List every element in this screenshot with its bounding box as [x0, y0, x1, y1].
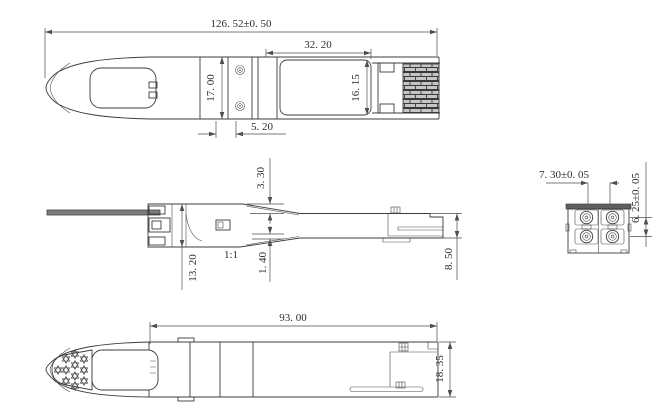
end-view: 7. 30±0. 05 6. 25±0. 05 — [539, 162, 652, 253]
end-top-strip — [566, 204, 631, 209]
scale-note: 1:1 — [224, 249, 238, 261]
dim-recess-height-group: 16. 15 — [350, 60, 369, 115]
dim-port-h-pitch-group: 7. 30±0. 05 — [539, 169, 619, 204]
fiber-port-icon — [580, 230, 592, 242]
port-housing — [601, 229, 624, 244]
bottom-section-lines — [190, 342, 253, 397]
bottom-view: 93. 00 18. 35 — [46, 312, 456, 401]
dim-rear-height: 8. 50 — [443, 248, 455, 271]
dim-bottom-step: 1. 40 — [257, 252, 269, 275]
dim-top-step: 3. 30 — [255, 167, 267, 190]
dim-rear-height-group: 8. 50 — [430, 214, 462, 281]
housing-notch — [582, 225, 591, 229]
latch-slider — [90, 68, 156, 108]
side-body-outline — [148, 204, 443, 247]
bail-nose-inner-line — [50, 63, 70, 113]
dim-lower-body-length: 93. 00 — [279, 312, 307, 324]
screw-icon — [236, 66, 245, 75]
bottom-slot — [350, 387, 423, 392]
body-section-lines — [258, 57, 277, 119]
edge-notch — [178, 338, 194, 342]
dim-body-height-group: 17. 00 — [205, 57, 224, 119]
dim-rear-recess-length-group: 32. 20 — [266, 39, 371, 59]
dim-rear-recess-length: 32. 20 — [304, 39, 332, 51]
bracket-tab — [380, 104, 394, 113]
edge-connector-contacts — [403, 64, 439, 113]
bottom-slider — [92, 350, 158, 390]
technical-drawing-page: 126. 52±0. 50 32. 20 17. 00 16. 15 5. 20 — [0, 0, 671, 414]
dim-top-step-group: 3. 30 — [247, 158, 284, 224]
dim-front-height: 13. 20 — [187, 254, 199, 282]
latch-detail — [149, 237, 165, 245]
fiber-port-icon — [606, 211, 618, 223]
dim-lower-body-length-group: 93. 00 — [150, 312, 437, 344]
dim-port-v-pitch-group: 6. 25±0. 05 — [630, 162, 652, 247]
transceiver-drawing: 126. 52±0. 50 32. 20 17. 00 16. 15 5. 20 — [0, 0, 671, 414]
edge-notch — [178, 397, 194, 401]
dim-overall-length: 126. 52±0. 50 — [210, 18, 272, 30]
dim-lower-body-width: 18. 35 — [434, 355, 446, 383]
bracket-tab — [380, 63, 394, 72]
fiber-port-icon — [580, 211, 592, 223]
bottom-body-outline — [150, 342, 438, 397]
side-notch — [566, 224, 569, 231]
port-housing — [575, 229, 598, 244]
top-view: 126. 52±0. 50 32. 20 17. 00 16. 15 5. 20 — [45, 18, 440, 138]
dim-port-v-pitch: 6. 25±0. 05 — [630, 172, 642, 223]
side-view: 3. 30 1. 40 13. 20 8. 50 1:1 — [47, 158, 462, 290]
port-housing — [575, 210, 598, 225]
dim-body-height: 17. 00 — [205, 74, 217, 102]
pcb-component-icon — [391, 207, 400, 213]
dim-recess-height: 16. 15 — [350, 74, 362, 102]
top-body-outline — [150, 57, 439, 119]
port-housing — [601, 210, 624, 225]
dim-bottom-step-group: 1. 40 — [252, 226, 284, 282]
housing-notch — [608, 225, 617, 229]
side-notch — [628, 224, 631, 231]
pcb-component-icon — [399, 343, 408, 351]
fiber-port-icon — [606, 230, 618, 242]
screw-icon — [236, 102, 245, 111]
pull-tab-bail — [47, 210, 160, 215]
dim-lower-body-width-group: 18. 35 — [434, 342, 456, 397]
dim-port-h-pitch: 7. 30±0. 05 — [539, 169, 590, 181]
dim-plate-width: 5. 20 — [251, 121, 274, 133]
latch-detail — [152, 221, 161, 229]
dim-plate-width-group: 5. 20 — [198, 121, 286, 138]
side-component-inner — [218, 222, 223, 228]
screw-plate — [228, 57, 252, 119]
